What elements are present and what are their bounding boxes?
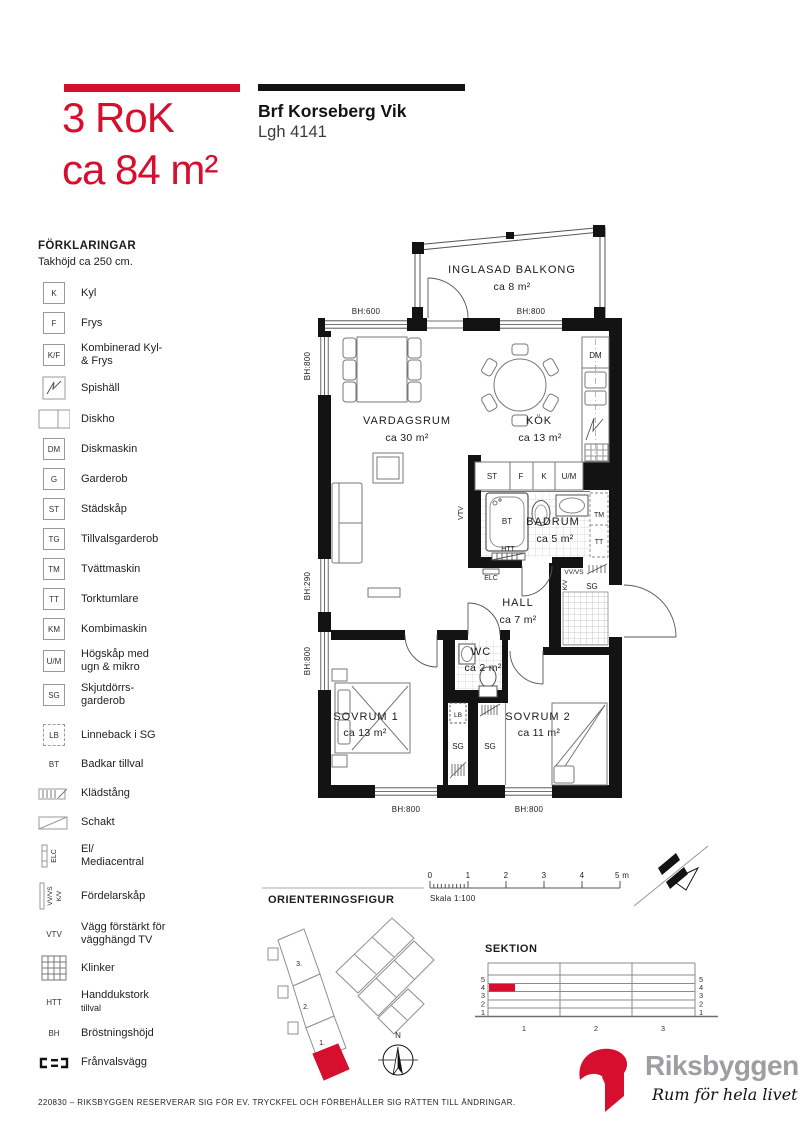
label-st: ST — [487, 472, 497, 481]
legend-item-fordelarskap: VV/VSK/V Fördelarskåp — [38, 879, 244, 913]
label-hall-area: ca 7 m² — [499, 614, 536, 626]
fridge-freezer-symbol-icon: K/F — [38, 344, 70, 366]
label-wc: WC — [471, 646, 491, 658]
legend-item-garderob: G Garderob — [38, 468, 244, 490]
label-f: F — [519, 472, 524, 481]
scale-tick-4: 4 — [580, 871, 585, 880]
kitchen-table — [480, 344, 559, 426]
legend-item-kyl-frys: K/F Kombinerad Kyl-& Frys — [38, 342, 244, 368]
cleaning-cabinet-symbol-icon: ST — [38, 498, 70, 520]
orientation-heading: ORIENTERINGSFIGUR — [268, 894, 394, 906]
label-bh800-left1: BH:800 — [303, 352, 312, 381]
towel-dryer-symbol-icon: HTT — [38, 998, 70, 1007]
tile-icon — [38, 955, 70, 981]
legend-item-hogskap: U/M Högskåp medugn & mikro — [38, 648, 244, 674]
site-label-3: 3. — [296, 961, 302, 968]
combo-machine-symbol-icon: KM — [38, 618, 70, 640]
dishwasher-symbol-icon: DM — [38, 438, 70, 460]
legend-item-skjutdorrsgarderob: SG Skjutdörrs-garderob — [38, 682, 244, 708]
label-kv: K/V — [562, 579, 569, 590]
label-htt: HTT — [501, 546, 515, 553]
distribution-closet-hatch — [587, 564, 607, 574]
apartment-number: Lgh 4141 — [258, 123, 327, 142]
scale-tick-0: 0 — [428, 871, 433, 880]
optional-wall-icon — [38, 1057, 70, 1069]
legend-item-klinker: Klinker — [38, 955, 244, 981]
dining-table — [343, 337, 421, 402]
towel-radiator — [492, 553, 525, 560]
sill-height-symbol-icon: BH — [38, 1029, 70, 1038]
hob-icon — [38, 376, 70, 400]
label-bath: BADRUM — [526, 516, 580, 528]
legend-item-torktumlare: TT Torktumlare — [38, 588, 244, 610]
section-col-3: 3 — [661, 1024, 665, 1033]
elc-unit — [483, 569, 499, 574]
legend-item-schakt: Schakt — [38, 812, 244, 833]
legend-item-kyl: K Kyl — [38, 282, 244, 304]
shaft-icon — [38, 815, 70, 831]
legend-subheading: Takhöjd ca 250 cm. — [38, 256, 244, 268]
electrical-center-icon: ELC — [38, 841, 70, 871]
label-vtv: VTV — [458, 506, 465, 520]
label-bed2-area: ca 11 m² — [518, 727, 561, 739]
legend-item-frys: F Frys — [38, 312, 244, 334]
site-building-row — [268, 929, 346, 1060]
legend-item-badkar: BT Badkar tillval — [38, 754, 244, 775]
label-bed1: SOVRUM 1 — [333, 711, 398, 723]
legend-item-spishall: Spishäll — [38, 376, 244, 400]
label-hall: HALL — [502, 597, 534, 609]
label-living-area: ca 30 m² — [385, 432, 428, 444]
label-tt: TT — [595, 539, 604, 546]
label-sg-right: SG — [484, 742, 496, 751]
armchair — [373, 453, 403, 483]
label-wc-area: ca 2 m² — [464, 662, 501, 674]
label-living: VARDAGSRUM — [363, 415, 451, 427]
legend-item-diskmaskin: DM Diskmaskin — [38, 438, 244, 460]
label-bh800-bottom1: BH:800 — [392, 805, 421, 814]
section-left-1: 1 — [481, 1008, 485, 1017]
legend-item-tvattmaskin: TM Tvättmaskin — [38, 558, 244, 580]
washer-symbol-icon: TM — [38, 558, 70, 580]
label-balcony: INGLASAD BALKONG — [448, 264, 576, 276]
label-bh290-left: BH:290 — [303, 572, 312, 601]
section-diagram: 5 4 3 2 1 5 4 3 2 1 1 2 3 — [475, 940, 725, 1040]
dryer-symbol-icon: TT — [38, 588, 70, 610]
scale-tick-2: 2 — [504, 871, 509, 880]
scale-tick-1: 1 — [466, 871, 471, 880]
site-label-1: 1. — [319, 1040, 325, 1047]
label-kitchen-area: ca 13 m² — [518, 432, 561, 444]
wardrobe-symbol-icon: G — [38, 468, 70, 490]
clothes-rail-hatch-left — [450, 762, 466, 778]
legend-item-elc: ELC El/Mediacentral — [38, 841, 244, 871]
label-bh800-bottom2: BH:800 — [515, 805, 544, 814]
title-line-rooms: 3 RoK — [62, 92, 217, 144]
project-name: Brf Korseberg Vik — [258, 101, 406, 122]
label-bt: BT — [502, 517, 512, 526]
freezer-symbol-icon: F — [38, 312, 70, 334]
svg-text:K/V: K/V — [56, 890, 63, 901]
floor-plan: INGLASAD BALKONG ca 8 m² VARDAGSRUM ca 3… — [262, 212, 682, 832]
page-title: 3 RoK ca 84 m² — [62, 92, 217, 196]
section-highlighted-floor — [489, 984, 515, 992]
header-red-bar — [64, 84, 240, 92]
riksbyggen-logo-icon — [572, 1042, 644, 1114]
label-kitchen: KÖK — [526, 415, 552, 427]
label-bed2: SOVRUM 2 — [505, 711, 570, 723]
sofa — [332, 483, 362, 563]
label-lb: LB — [454, 712, 462, 719]
footer-disclaimer: 220830 – RIKSBYGGEN RESERVERAR SIG FÖR E… — [38, 1098, 516, 1107]
washer-dryer-closet — [590, 493, 608, 557]
label-elc: ELC — [484, 575, 498, 582]
legend: FÖRKLARINGAR Takhöjd ca 250 cm. K Kyl F … — [38, 240, 244, 1081]
title-line-area: ca 84 m² — [62, 144, 217, 196]
compass-icon: N — [378, 1031, 418, 1075]
header-black-bar — [258, 84, 465, 91]
legend-item-tillvalsgarderob: TG Tillvalsgarderob — [38, 528, 244, 550]
scale-tick-5: 5 m — [615, 871, 629, 880]
logo-brand-name: Riksbyggen — [645, 1050, 799, 1082]
optional-wardrobe-symbol-icon: TG — [38, 528, 70, 550]
scale-label: Skala 1:100 — [430, 894, 476, 903]
label-balcony-area: ca 8 m² — [493, 281, 530, 293]
compass-north-label: N — [395, 1031, 401, 1040]
scale-tick-3: 3 — [542, 871, 547, 880]
section-col-2: 2 — [594, 1024, 598, 1033]
legend-item-diskho: Diskho — [38, 408, 244, 430]
label-vvvs: VV/VS — [564, 569, 584, 576]
legend-item-stadskap: ST Städskåp — [38, 498, 244, 520]
site-building-cluster — [336, 918, 434, 1034]
label-sg-left: SG — [452, 742, 464, 751]
linen-shelf-symbol-icon: LB — [38, 724, 70, 746]
fridge-symbol-icon: K — [38, 282, 70, 304]
legend-item-linneback: LB Linneback i SG — [38, 724, 244, 746]
legend-item-handdukstork: HTT Handdukstorktillval — [38, 989, 244, 1015]
sliding-wardrobe-symbol-icon: SG — [38, 684, 70, 706]
label-bh800-top: BH:800 — [517, 307, 546, 316]
bathroom-sink — [556, 495, 588, 516]
section-right-1: 1 — [699, 1008, 703, 1017]
legend-item-kombimaskin: KM Kombimaskin — [38, 618, 244, 640]
label-bath-area: ca 5 m² — [536, 533, 573, 545]
label-dm: DM — [589, 351, 602, 360]
section-col-1: 1 — [522, 1024, 526, 1033]
bathtub-symbol-icon: BT — [38, 760, 70, 769]
svg-text:ELC: ELC — [51, 849, 58, 863]
site-label-2: 2. — [303, 1004, 309, 1011]
clothes-rail-hatch-right — [480, 704, 500, 716]
clothes-rail-icon — [38, 786, 70, 802]
svg-text:VV/VS: VV/VS — [47, 886, 54, 906]
label-bh600-top: BH:600 — [352, 307, 381, 316]
legend-item-vtv: VTV Vägg förstärkt förvägghängd TV — [38, 921, 244, 947]
label-k: K — [541, 472, 547, 481]
label-um: U/M — [562, 472, 577, 481]
legend-heading: FÖRKLARINGAR — [38, 240, 244, 252]
legend-item-franvalsvagg: Frånvalsvägg — [38, 1052, 244, 1073]
label-bed1-area: ca 13 m² — [343, 727, 386, 739]
distribution-cabinet-icon: VV/VSK/V — [38, 879, 70, 913]
label-tm: TM — [594, 512, 604, 519]
sink-icon — [38, 408, 70, 430]
oven-micro-symbol-icon: U/M — [38, 650, 70, 672]
label-sg-hall: SG — [586, 582, 598, 591]
orientation-figure: 3. 2. 1. N — [258, 908, 473, 1108]
label-bh800-left2: BH:800 — [303, 647, 312, 676]
logo-tagline: Rum för hela livet — [652, 1085, 798, 1104]
legend-item-kladstang: Klädstång — [38, 783, 244, 804]
tv-wall-symbol-icon: VTV — [38, 930, 70, 939]
tv-bench — [368, 588, 400, 597]
legend-item-brostningshojd: BH Bröstningshöjd — [38, 1023, 244, 1044]
